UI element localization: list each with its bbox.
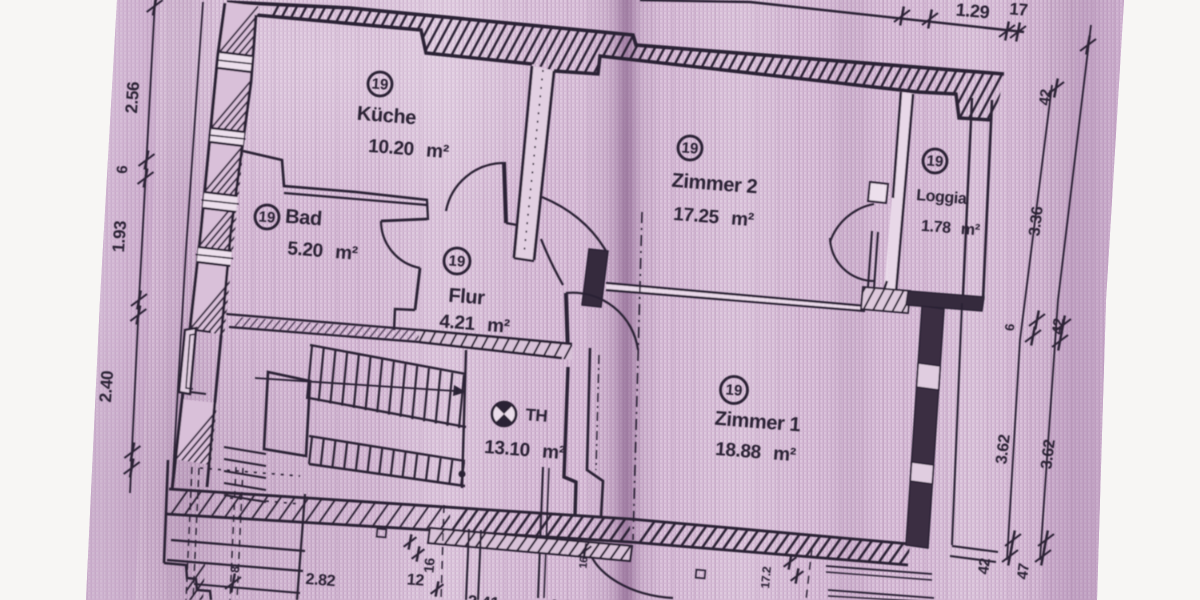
svg-text:1.93: 1.93 xyxy=(109,220,130,253)
svg-text:2.56: 2.56 xyxy=(122,81,143,114)
svg-text:17.2: 17.2 xyxy=(758,565,774,589)
svg-text:47: 47 xyxy=(1014,562,1033,580)
svg-text:2.41: 2.41 xyxy=(467,592,500,600)
svg-text:19: 19 xyxy=(681,139,699,157)
svg-text:1.29: 1.29 xyxy=(955,0,990,22)
svg-text:Bad: Bad xyxy=(284,206,322,231)
svg-text:2.82: 2.82 xyxy=(305,571,336,590)
svg-text:19: 19 xyxy=(371,75,389,93)
svg-text:12: 12 xyxy=(406,571,425,589)
svg-text:42: 42 xyxy=(1049,317,1068,335)
svg-text:19: 19 xyxy=(926,152,944,170)
svg-text:19: 19 xyxy=(448,252,466,270)
svg-text:6: 6 xyxy=(114,165,132,174)
svg-text:TH: TH xyxy=(525,405,548,426)
svg-text:17: 17 xyxy=(1009,0,1029,20)
svg-text:16: 16 xyxy=(420,557,437,574)
svg-text:3.36: 3.36 xyxy=(1026,205,1047,237)
svg-text:3.62: 3.62 xyxy=(1038,438,1059,470)
svg-text:42: 42 xyxy=(975,557,994,575)
svg-text:19: 19 xyxy=(258,208,276,226)
svg-text:Flur: Flur xyxy=(448,285,486,310)
svg-text:2.40: 2.40 xyxy=(96,370,117,403)
svg-text:Küche: Küche xyxy=(356,103,417,130)
svg-text:3.62: 3.62 xyxy=(993,433,1014,465)
svg-text:42: 42 xyxy=(1036,88,1055,106)
svg-text:1.0: 1.0 xyxy=(549,596,573,600)
svg-text:19: 19 xyxy=(725,381,743,399)
